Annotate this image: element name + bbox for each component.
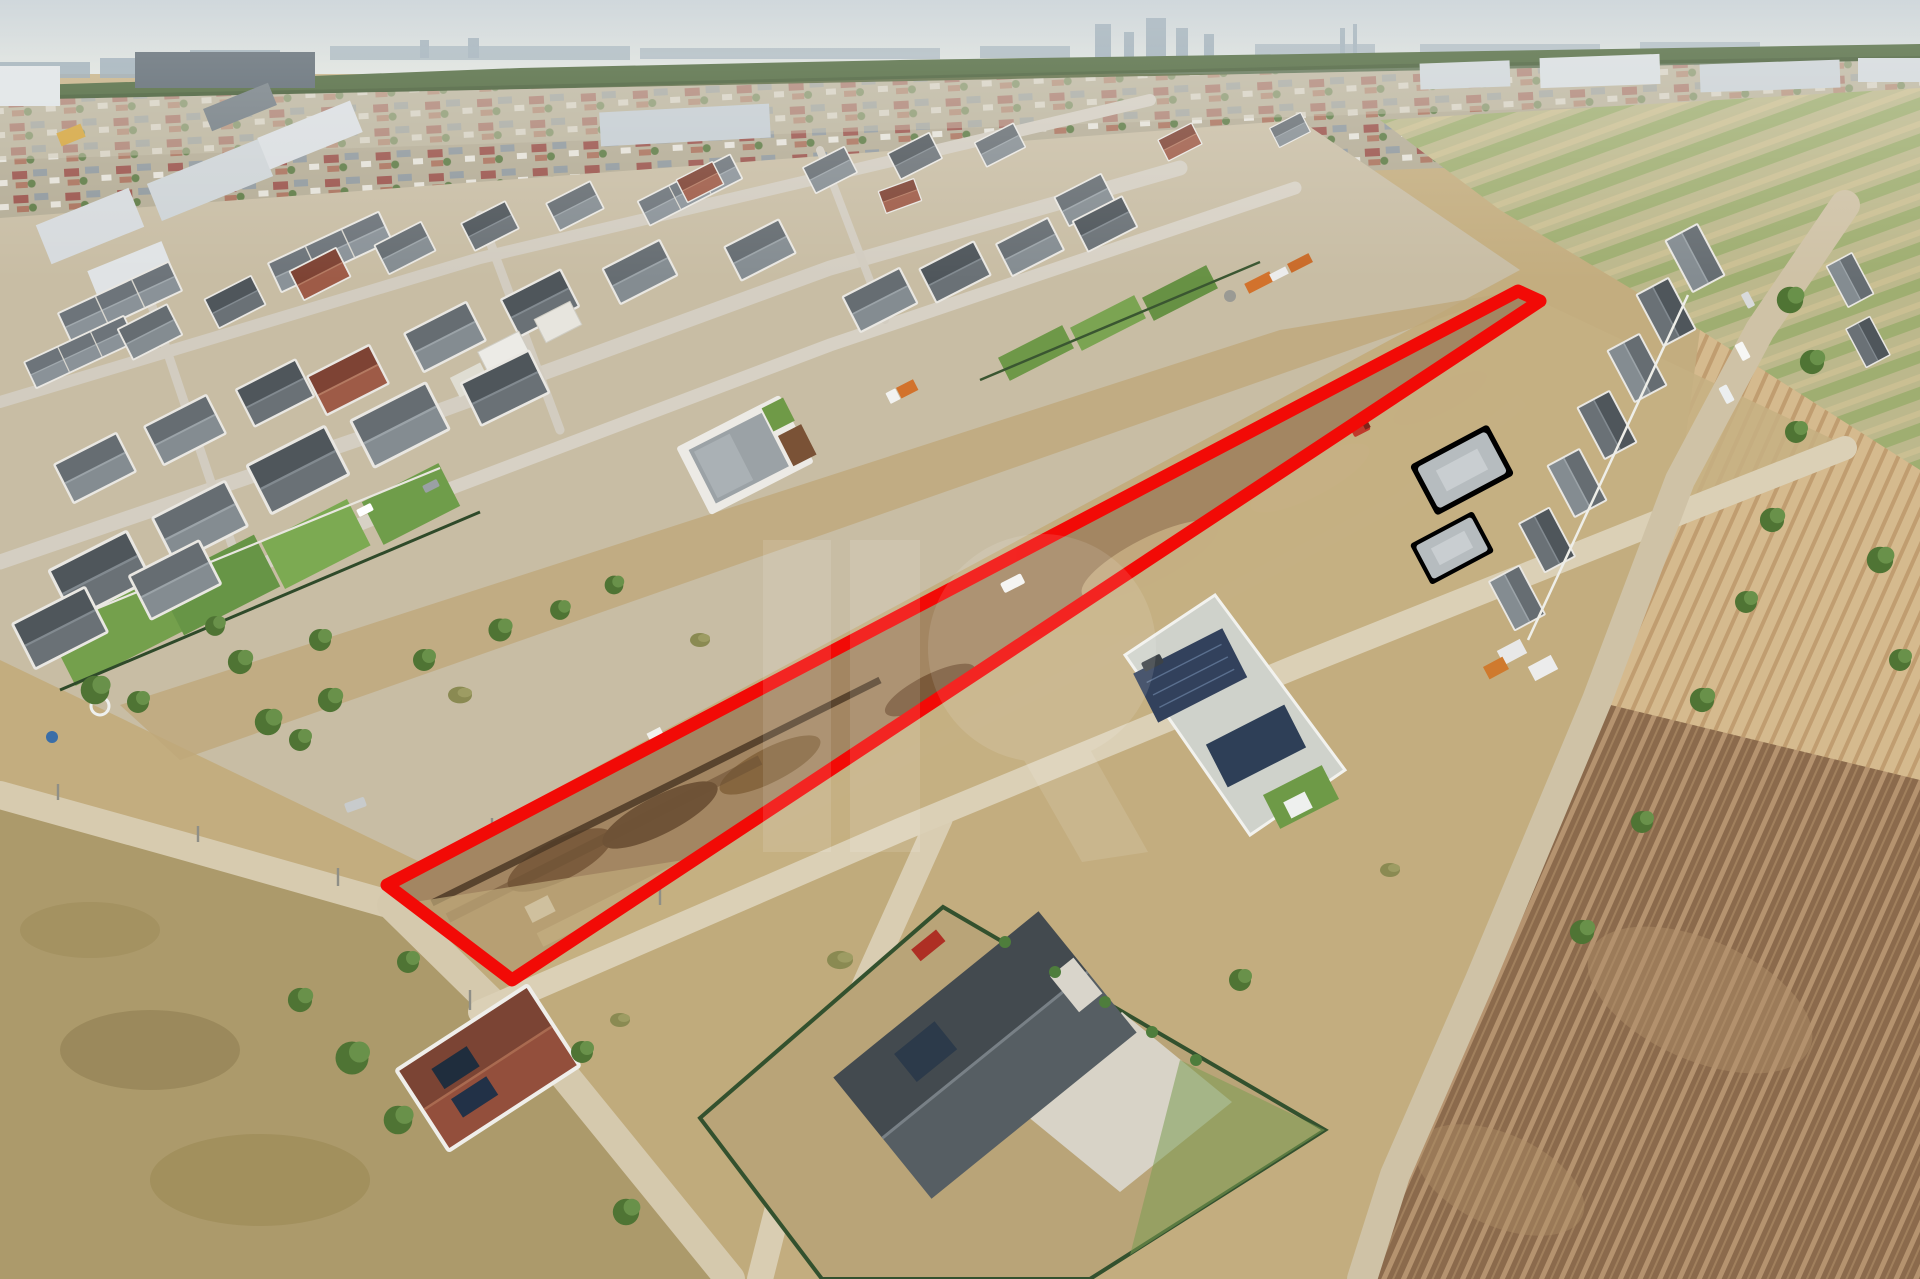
haze-overlay [0, 0, 1920, 280]
aerial-photo [0, 0, 1920, 1279]
watermark-bar-right [850, 540, 920, 852]
watermark-bar-left [763, 540, 831, 852]
